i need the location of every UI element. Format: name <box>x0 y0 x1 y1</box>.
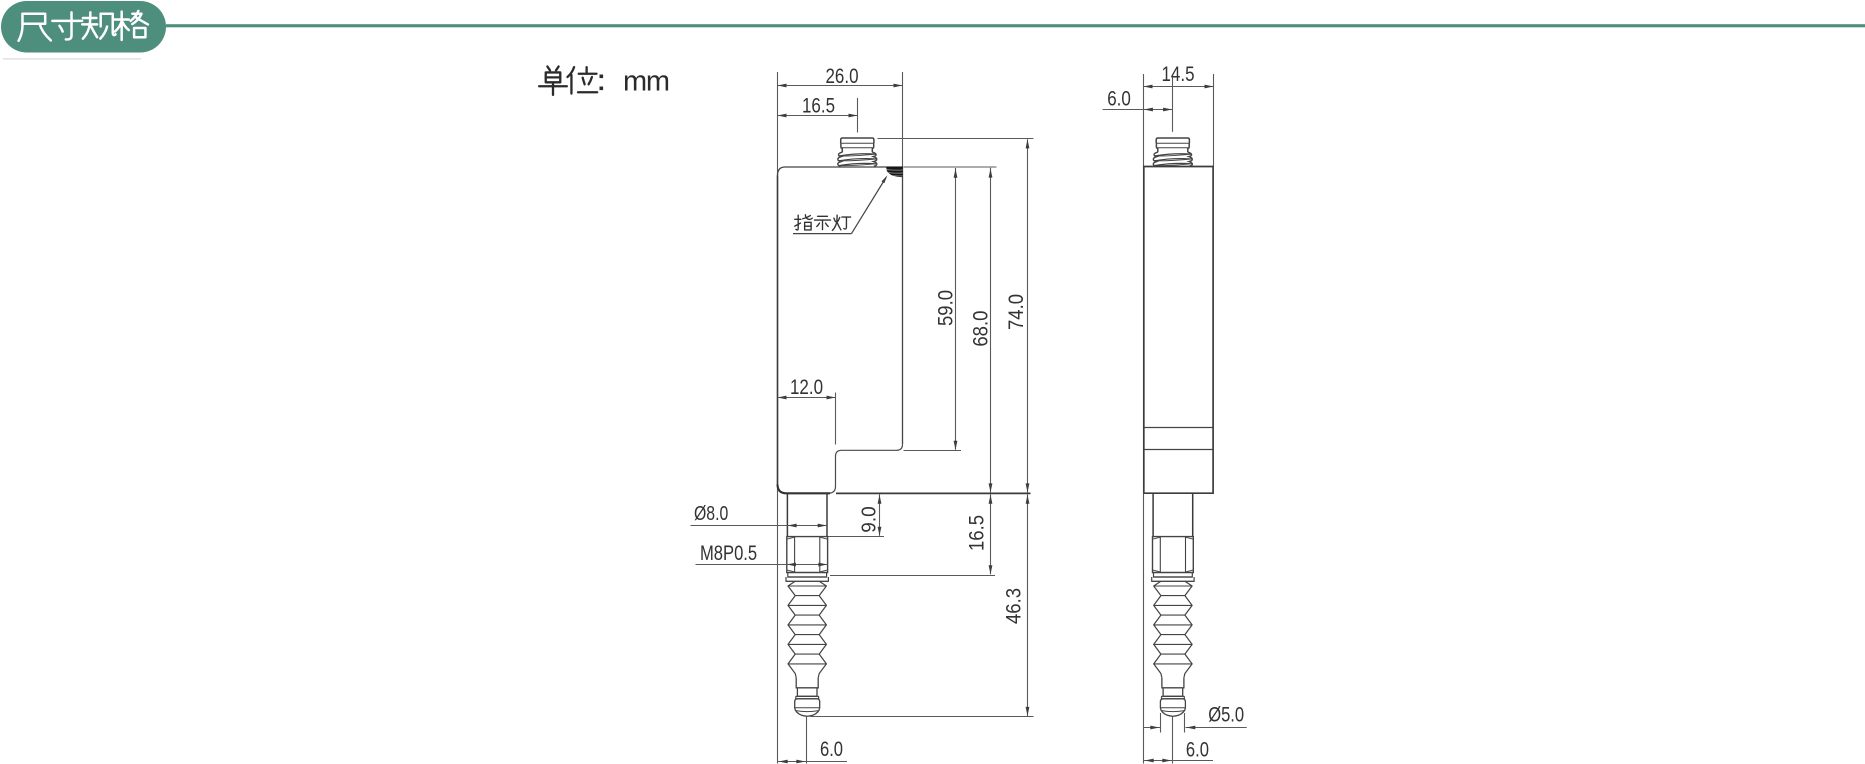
svg-text:16.5: 16.5 <box>965 515 989 551</box>
svg-text:Ø8.0: Ø8.0 <box>694 502 728 524</box>
svg-text:12.0: 12.0 <box>790 375 823 399</box>
svg-text:Ø5.0: Ø5.0 <box>1208 704 1244 727</box>
svg-text:68.0: 68.0 <box>969 311 993 347</box>
svg-text:26.0: 26.0 <box>825 64 858 88</box>
svg-text:46.3: 46.3 <box>1002 588 1026 624</box>
svg-text:6.0: 6.0 <box>1107 87 1131 111</box>
svg-text:14.5: 14.5 <box>1161 62 1194 86</box>
svg-text:74.0: 74.0 <box>1005 294 1029 330</box>
svg-text:6.0: 6.0 <box>820 738 843 761</box>
svg-text:9.0: 9.0 <box>858 506 881 533</box>
svg-text:mm: mm <box>623 66 670 98</box>
svg-text:59.0: 59.0 <box>934 290 958 326</box>
svg-text:M8P0.5: M8P0.5 <box>700 542 757 565</box>
svg-text:16.5: 16.5 <box>802 93 835 117</box>
svg-text:6.0: 6.0 <box>1186 739 1209 762</box>
